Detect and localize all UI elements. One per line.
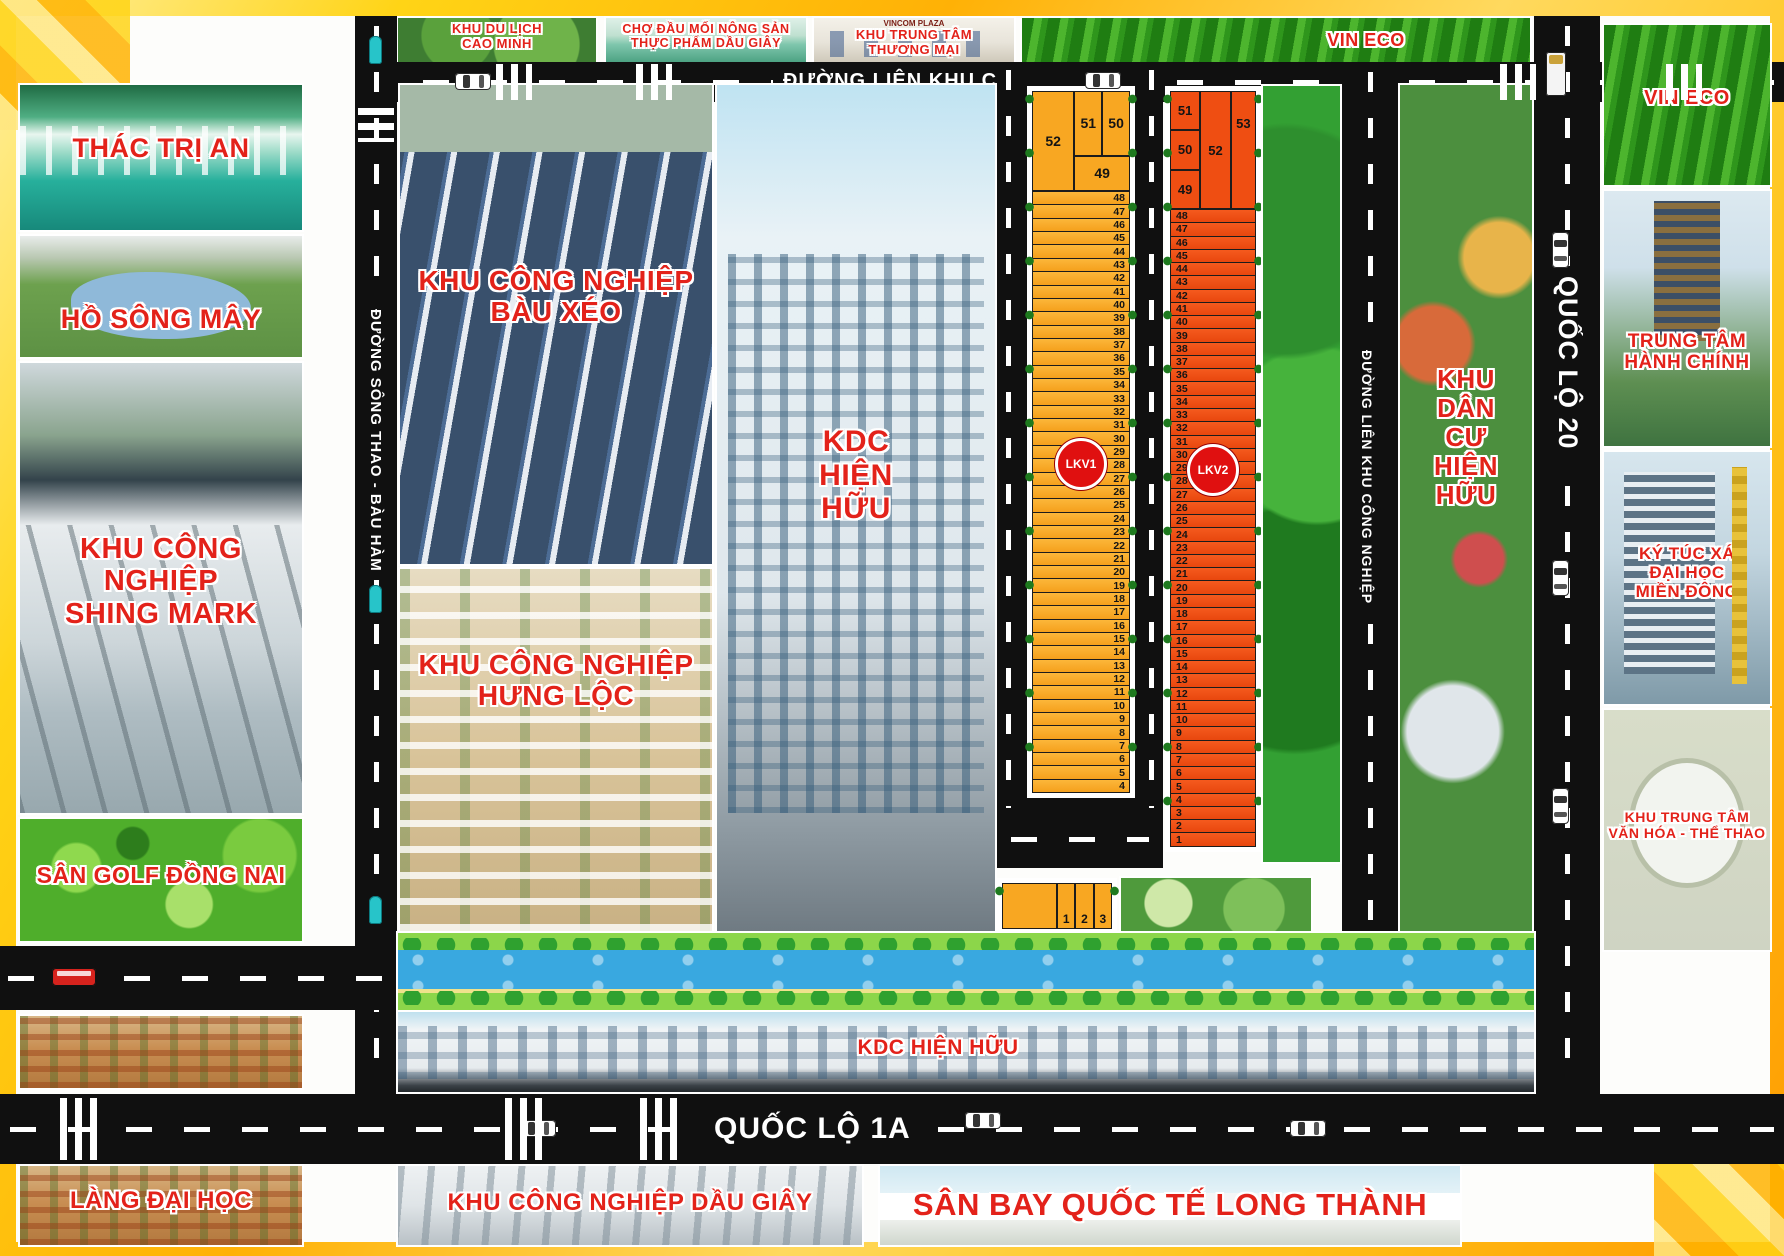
plot-row-32: 32 — [1032, 406, 1130, 419]
cho-dau-moi-label-line2: THỰC PHẨM DẦU GIÂY — [631, 36, 781, 50]
plot-row-14: 14 — [1032, 646, 1130, 659]
vineco-top-label: VIN ECO — [1327, 30, 1405, 50]
boat-icon — [369, 896, 382, 924]
plot-row-19: 19 — [1170, 595, 1256, 608]
photo-san-golf-dong-nai: SÂN GOLF ĐỒNG NAI — [20, 819, 302, 941]
lkv2-rows: 4847464544434241403938373635343332313029… — [1170, 209, 1256, 847]
plot-annex-3: 3 — [1094, 883, 1112, 929]
photo-ky-tuc-xa: KÝ TÚC XÁ ĐẠI HỌC MIỀN ĐÔNG — [1604, 452, 1770, 704]
photo-green-buffer — [1263, 86, 1340, 862]
photo-khu-du-lich-cao-minh: KHU DU LỊCH CAO MINH — [398, 18, 596, 62]
photo-khu-trung-tam-thuong-mai: VINCOM PLAZA KHU TRUNG TÂM THƯƠNG MẠI — [814, 18, 1014, 62]
plot-row-42: 42 — [1032, 272, 1130, 285]
plot-row-7: 7 — [1032, 740, 1130, 753]
truck-icon — [1546, 52, 1566, 96]
lkv1-top-section: 52 51 50 49 — [1032, 91, 1130, 191]
crosswalk — [505, 1098, 549, 1160]
boat-icon — [369, 585, 382, 613]
plot-row-1: 1 — [1170, 833, 1256, 846]
shing-mark-label-line2: SHING MARK — [65, 598, 257, 630]
photo-vineco-top: VIN ECO — [1022, 18, 1530, 62]
plot-row-47: 47 — [1032, 205, 1130, 218]
plot-row-42: 42 — [1170, 290, 1256, 303]
plot-row-5: 5 — [1032, 766, 1130, 779]
plot-row-37: 37 — [1170, 356, 1256, 369]
plot-row-23: 23 — [1032, 526, 1130, 539]
kdc-column-label-line2: HIỆN — [819, 459, 893, 493]
plot-row-40: 40 — [1170, 316, 1256, 329]
plot-row-5: 5 — [1170, 780, 1256, 793]
plot-row-11: 11 — [1170, 701, 1256, 714]
plot-row-39: 39 — [1032, 312, 1130, 325]
photo-vineco-right: VIN ECO — [1604, 25, 1770, 185]
photo-kdc-hien-huu-column: KDC HIỆN HỮU — [717, 85, 995, 932]
bau-xeo-label-line2: BÀU XÉO — [490, 296, 621, 327]
kdc-column-label-line3: HỮU — [821, 492, 891, 526]
plot-annex-2: 2 — [1075, 883, 1093, 929]
plot-row-34: 34 — [1032, 379, 1130, 392]
van-hoa-label-line1: KHU TRUNG TÂM — [1625, 810, 1750, 826]
plot-row-36: 36 — [1032, 352, 1130, 365]
khu-dan-cu-label-line3: CƯ — [1445, 423, 1486, 452]
dau-giay-label: KHU CÔNG NGHIỆP DẦU GIÂY — [448, 1190, 813, 1217]
car-icon — [1552, 788, 1569, 824]
hung-loc-label-line2: HƯNG LỘC — [478, 680, 634, 711]
plot-row-47: 47 — [1170, 223, 1256, 236]
plot-lkv1-50: 50 — [1102, 91, 1130, 156]
photo-van-hoa-the-thao: KHU TRUNG TÂM VĂN HÓA - THỂ THAO — [1604, 710, 1770, 950]
plot-row-35: 35 — [1032, 366, 1130, 379]
photo-kcn-dau-giay: KHU CÔNG NGHIỆP DẦU GIÂY — [398, 1166, 862, 1245]
plot-row-14: 14 — [1170, 661, 1256, 674]
plot-row-48: 48 — [1170, 209, 1256, 223]
plot-row-39: 39 — [1170, 329, 1256, 342]
khu-dan-cu-label-line5: HỮU — [1436, 481, 1497, 510]
plot-row-10: 10 — [1170, 714, 1256, 727]
ky-tuc-xa-label-line1: KÝ TÚC XÁ — [1639, 544, 1735, 563]
road-quoc-lo-20: QUỐC LỘ 20 — [1534, 16, 1600, 1094]
plot-row-25: 25 — [1032, 499, 1130, 512]
plot-row-46: 46 — [1032, 219, 1130, 232]
crosswalk — [1666, 64, 1702, 100]
crosswalk — [60, 1098, 104, 1160]
plot-row-38: 38 — [1032, 326, 1130, 339]
hung-loc-label-line1: KHU CÔNG NGHIỆP — [418, 649, 693, 680]
plot-row-20: 20 — [1170, 581, 1256, 594]
plot-row-16: 16 — [1170, 635, 1256, 648]
photo-village-area — [20, 1016, 302, 1088]
plot-annex-1: 1 — [1057, 883, 1075, 929]
photo-kcn-hung-loc: KHU CÔNG NGHIỆP HƯNG LỘC — [400, 569, 712, 931]
plot-row-12: 12 — [1170, 688, 1256, 701]
photo-kcn-bau-xeo: KHU CÔNG NGHIỆP BÀU XÉO — [400, 85, 712, 564]
plot-row-18: 18 — [1170, 608, 1256, 621]
san-bay-label: SÂN BAY QUỐC TẾ LONG THÀNH — [913, 1188, 1427, 1223]
road-quoc-lo-1a-label: QUỐC LỘ 1A — [700, 1112, 925, 1146]
plot-block-lkv1: 52 51 50 49 4847464544434241403938373635… — [1027, 86, 1135, 798]
road-dash-line — [1006, 70, 1011, 808]
plot-row-44: 44 — [1032, 245, 1130, 258]
thuong-mai-label-line1: KHU TRUNG TÂM — [856, 28, 972, 43]
plot-row-22: 22 — [1170, 555, 1256, 568]
plot-row-35: 35 — [1170, 382, 1256, 395]
road-dash-line — [1565, 26, 1570, 1084]
plot-row-21: 21 — [1032, 553, 1130, 566]
plot-row-15: 15 — [1170, 648, 1256, 661]
plot-row-9: 9 — [1032, 713, 1130, 726]
crosswalk — [1500, 64, 1536, 100]
plot-row-21: 21 — [1170, 568, 1256, 581]
crosswalk — [636, 64, 672, 100]
ky-tuc-xa-label-line2: ĐẠI HỌC — [1649, 563, 1724, 582]
photo-thac-tri-an: THÁC TRỊ AN — [20, 85, 302, 230]
photo-san-bay-long-thanh: SÂN BAY QUỐC TẾ LONG THÀNH — [880, 1166, 1460, 1245]
river-water — [398, 950, 1534, 993]
plot-row-7: 7 — [1170, 754, 1256, 767]
plot-row-17: 17 — [1170, 621, 1256, 634]
lkv1-rows: 4847464544434241403938373635343332313029… — [1032, 191, 1130, 793]
plot-row-9: 9 — [1170, 727, 1256, 740]
plot-row-31: 31 — [1032, 419, 1130, 432]
crosswalk — [496, 64, 532, 100]
lkv2-top-section: 51 50 49 52 53 — [1170, 91, 1256, 209]
plot-lkv2-50: 50 — [1170, 130, 1200, 169]
car-icon — [455, 73, 491, 90]
photo-ho-song-may: HỒ SÔNG MÂY — [20, 236, 302, 357]
car-icon — [965, 1112, 1001, 1129]
khu-dan-cu-label-line4: HIỆN — [1434, 452, 1498, 481]
shing-mark-label-line1: KHU CÔNG NGHIỆP — [20, 533, 302, 598]
road-song-thao: ĐƯỜNG SÔNG THAO - BÀU HÀM — [355, 16, 397, 1094]
road-quoc-lo-20-label: QUỐC LỘ 20 — [1552, 266, 1583, 460]
real-estate-location-map: THÁC TRỊ AN HỒ SÔNG MÂY KHU CÔNG NGHIỆP … — [0, 0, 1784, 1256]
plot-row-45: 45 — [1170, 250, 1256, 263]
thac-tri-an-label: THÁC TRỊ AN — [73, 133, 250, 163]
kdc-column-label-line1: KDC — [823, 425, 890, 459]
plot-row-13: 13 — [1032, 660, 1130, 673]
plot-row-11: 11 — [1032, 686, 1130, 699]
plot-row-41: 41 — [1032, 286, 1130, 299]
car-icon — [1552, 560, 1569, 596]
plot-row-44: 44 — [1170, 263, 1256, 276]
plot-row-25: 25 — [1170, 515, 1256, 528]
plot-lkv1-49: 49 — [1074, 156, 1130, 191]
plot-lkv1-51: 51 — [1074, 91, 1102, 156]
road-dash-line — [1149, 70, 1154, 808]
road-lien-khu-vertical-label: ĐƯỜNG LIÊN KHU CÔNG NGHIỆP — [1359, 342, 1375, 612]
san-golf-label: SÂN GOLF ĐỒNG NAI — [37, 863, 286, 889]
photo-kdc-hien-huu-rowhouses: KDC HIỆN HỮU — [398, 1012, 1534, 1092]
photo-kcn-shing-mark: KHU CÔNG NGHIỆP SHING MARK — [20, 363, 302, 813]
plot-block-lkv2: 51 50 49 52 53 4847464544434241403938373… — [1165, 86, 1261, 852]
plot-row-17: 17 — [1032, 606, 1130, 619]
plot-row-15: 15 — [1032, 633, 1130, 646]
plot-row-26: 26 — [1170, 502, 1256, 515]
plot-row-33: 33 — [1170, 409, 1256, 422]
crosswalk — [358, 108, 394, 142]
illustration-river-strip — [398, 933, 1534, 1010]
plot-row-10: 10 — [1032, 700, 1130, 713]
photo-trung-tam-hanh-chinh: TRUNG TÂM HÀNH CHÍNH — [1604, 191, 1770, 446]
road-song-thao-label: ĐƯỜNG SÔNG THAO - BÀU HÀM — [367, 301, 384, 580]
plot-row-43: 43 — [1032, 259, 1130, 272]
plot-row-19: 19 — [1032, 579, 1130, 592]
photo-park-strip — [1121, 878, 1311, 934]
photo-cho-dau-moi: CHỢ ĐẦU MỐI NÔNG SẢN THỰC PHẨM DẦU GIÂY — [606, 18, 806, 62]
plot-block-annex: 1 2 3 — [997, 878, 1117, 934]
thuong-mai-label-line2: THƯƠNG MẠI — [868, 43, 959, 58]
cao-minh-label-line1: KHU DU LỊCH — [452, 22, 542, 37]
plot-annex-large — [1002, 883, 1057, 929]
plot-row-32: 32 — [1170, 422, 1256, 435]
plot-row-20: 20 — [1032, 566, 1130, 579]
ky-tuc-xa-label-line3: MIỀN ĐÔNG — [1636, 582, 1739, 601]
lkv2-badge: LKV2 — [1187, 444, 1239, 496]
crosswalk — [640, 1098, 684, 1160]
road-dash-line — [1011, 837, 1149, 842]
hanh-chinh-label-line1: TRUNG TÂM — [1628, 331, 1746, 352]
plot-row-48: 48 — [1032, 191, 1130, 205]
bau-xeo-label-line1: KHU CÔNG NGHIỆP — [418, 265, 693, 296]
khu-dan-cu-label-line2: DÂN — [1437, 394, 1495, 423]
plot-row-24: 24 — [1032, 513, 1130, 526]
plot-row-13: 13 — [1170, 674, 1256, 687]
plot-row-16: 16 — [1032, 620, 1130, 633]
cao-minh-label-line2: CAO MINH — [462, 37, 532, 52]
car-icon — [1085, 72, 1121, 89]
plot-lkv2-52: 52 — [1200, 91, 1231, 209]
plot-row-40: 40 — [1032, 299, 1130, 312]
plot-row-45: 45 — [1032, 232, 1130, 245]
plot-row-24: 24 — [1170, 528, 1256, 541]
road-quoc-lo-1a: QUỐC LỘ 1A — [0, 1094, 1784, 1164]
plot-row-23: 23 — [1170, 542, 1256, 555]
plot-row-22: 22 — [1032, 539, 1130, 552]
plot-row-38: 38 — [1170, 343, 1256, 356]
plot-row-46: 46 — [1170, 237, 1256, 250]
photo-khu-dan-cu-hien-huu: KHU DÂN CƯ HIỆN HỮU — [1400, 85, 1532, 947]
kdc-hien-huu-bottom-label: KDC HIỆN HỮU — [857, 1036, 1018, 1060]
road-lien-khu-vertical: ĐƯỜNG LIÊN KHU CÔNG NGHIỆP — [1342, 62, 1398, 932]
plot-row-2: 2 — [1170, 820, 1256, 833]
van-hoa-label-line2: VĂN HÓA - THỂ THAO — [1608, 826, 1765, 842]
khu-dan-cu-label-line1: KHU — [1437, 365, 1495, 394]
plot-row-6: 6 — [1032, 753, 1130, 766]
plot-row-4: 4 — [1032, 780, 1130, 793]
ho-song-may-label: HỒ SÔNG MÂY — [61, 304, 262, 334]
cho-dau-moi-label-line1: CHỢ ĐẦU MỐI NÔNG SẢN — [622, 22, 789, 36]
hanh-chinh-label-line2: HÀNH CHÍNH — [1624, 352, 1749, 373]
plot-lkv1-52: 52 — [1032, 91, 1074, 191]
plot-row-43: 43 — [1170, 276, 1256, 289]
plot-row-41: 41 — [1170, 303, 1256, 316]
plot-lkv2-53: 53 — [1231, 91, 1256, 209]
plot-lkv2-49: 49 — [1170, 170, 1200, 209]
plot-row-8: 8 — [1170, 741, 1256, 754]
plot-row-18: 18 — [1032, 593, 1130, 606]
lkv1-badge: LKV1 — [1055, 438, 1107, 490]
plot-row-3: 3 — [1170, 807, 1256, 820]
plot-lkv2-51: 51 — [1170, 91, 1200, 130]
bus-icon — [52, 968, 96, 986]
river-bank — [398, 989, 1534, 1010]
plot-row-12: 12 — [1032, 673, 1130, 686]
plot-row-8: 8 — [1032, 726, 1130, 739]
plot-row-4: 4 — [1170, 794, 1256, 807]
boat-icon — [369, 36, 382, 64]
plot-row-37: 37 — [1032, 339, 1130, 352]
car-icon — [1552, 232, 1569, 268]
photo-lang-dai-hoc: LÀNG ĐẠI HỌC — [20, 1166, 302, 1245]
plot-row-33: 33 — [1032, 392, 1130, 405]
car-icon — [1290, 1120, 1326, 1137]
plot-row-34: 34 — [1170, 396, 1256, 409]
plot-row-36: 36 — [1170, 369, 1256, 382]
lang-dai-hoc-label: LÀNG ĐẠI HỌC — [70, 1188, 252, 1215]
plot-row-6: 6 — [1170, 767, 1256, 780]
